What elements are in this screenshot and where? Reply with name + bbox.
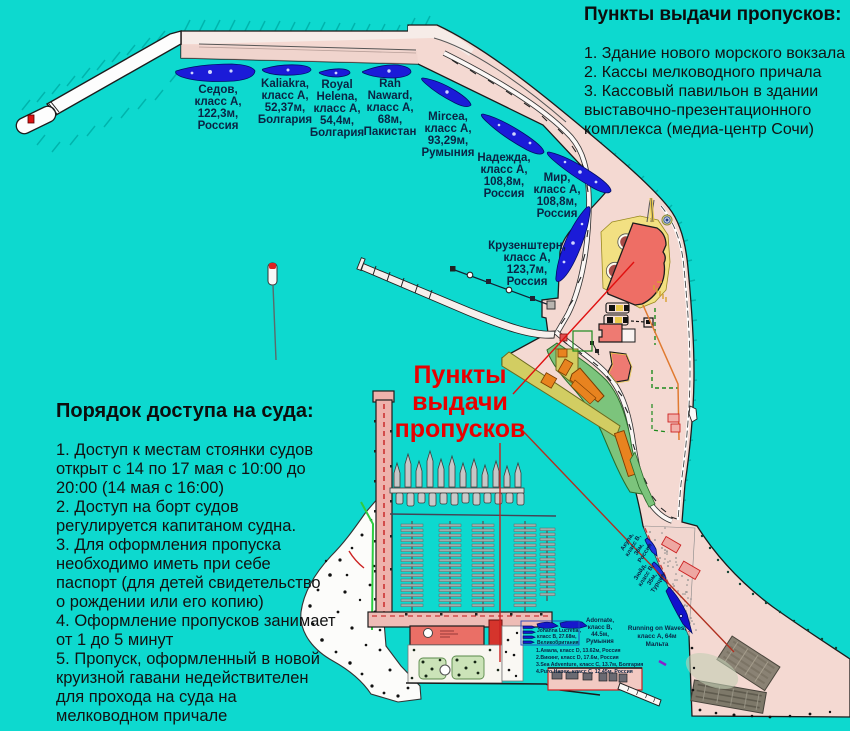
svg-text:круизной гавани недействителен: круизной гавани недействителен [56, 669, 309, 687]
svg-text:2. Доступ на борт судов: 2. Доступ на борт судов [56, 498, 239, 516]
svg-text:паспорт (для детей свидетельст: паспорт (для детей свидетельство [56, 574, 321, 592]
svg-text:Naward,: Naward, [368, 90, 413, 102]
svg-text:открыт с 14 по 17 мая с 10:00: открыт с 14 по 17 мая с 10:00 до [56, 460, 306, 478]
svg-text:1. Доступ к местам стоянки суд: 1. Доступ к местам стоянки судов [56, 441, 313, 459]
svg-text:Румыния: Румыния [586, 639, 614, 645]
svg-text:Пакистан: Пакистан [364, 126, 417, 138]
svg-text:Helena,: Helena, [317, 91, 358, 103]
svg-text:о рождении или его копию): о рождении или его копию) [56, 593, 264, 611]
svg-text:122,3м,: 122,3м, [198, 108, 238, 120]
svg-text:класс А,: класс А, [261, 90, 308, 102]
svg-text:класс А,: класс А, [313, 103, 360, 115]
svg-text:54,4м,: 54,4м, [320, 115, 354, 127]
svg-text:пропусков: пропусков [395, 415, 526, 443]
svg-text:Mircea,: Mircea, [428, 111, 468, 123]
svg-text:2. Кассы мелководного причала: 2. Кассы мелководного причала [584, 64, 822, 81]
svg-text:класс А,: класс А, [480, 164, 527, 176]
svg-text:Порядок доступа на суда:: Порядок доступа на суда: [56, 400, 314, 422]
svg-text:Мир,: Мир, [544, 172, 571, 184]
svg-text:выдачи: выдачи [412, 388, 508, 416]
svg-text:Россия: Россия [484, 188, 525, 200]
svg-text:Пункты: Пункты [413, 361, 506, 389]
svg-text:необходимо иметь при себе: необходимо иметь при себе [56, 555, 271, 573]
svg-text:2.Викинг, класс D, 17.6м, Росс: 2.Викинг, класс D, 17.6м, Россия [536, 655, 619, 661]
svg-text:класс А,: класс А, [366, 102, 413, 114]
svg-text:3.Sea Adventure, класс C, 13.7: 3.Sea Adventure, класс C, 13.7м, Болгари… [536, 662, 643, 668]
svg-text:Rah: Rah [379, 78, 401, 90]
svg-text:Россия: Россия [198, 120, 239, 132]
svg-text:от 1 до 5 минут: от 1 до 5 минут [56, 631, 174, 649]
svg-text:108,8м,: 108,8м, [537, 196, 577, 208]
svg-text:для прохода на суда на: для прохода на суда на [56, 688, 237, 706]
svg-text:Болгария: Болгария [258, 114, 312, 126]
svg-text:Мальта: Мальта [646, 641, 669, 648]
svg-text:класс А,: класс А, [424, 123, 471, 135]
svg-text:Adornate,: Adornate, [586, 618, 614, 624]
svg-text:Седов,: Седов, [198, 84, 237, 96]
svg-text:класс В,: класс В, [588, 625, 613, 631]
svg-text:Royal: Royal [321, 79, 352, 91]
svg-text:123,7м,: 123,7м, [507, 264, 547, 276]
svg-text:Россия: Россия [537, 208, 578, 220]
svg-text:Румыния: Румыния [422, 147, 475, 159]
svg-text:5. Пропуск, оформленный в ново: 5. Пропуск, оформленный в новой [56, 650, 320, 668]
svg-text:108,8м,: 108,8м, [484, 176, 524, 188]
svg-text:Running on Waves,: Running on Waves, [628, 625, 686, 632]
svg-text:44.5м,: 44.5м, [591, 632, 609, 638]
svg-text:4.Puro Hanex, класс C, 12.45м,: 4.Puro Hanex, класс C, 12.45м, Россия [536, 669, 633, 675]
svg-text:20:00 (14 мая с 16:00): 20:00 (14 мая с 16:00) [56, 479, 224, 497]
svg-text:Пункты выдачи пропусков:: Пункты выдачи пропусков: [584, 4, 841, 25]
svg-text:52,37м,: 52,37м, [265, 102, 305, 114]
svg-text:комплекса (медиа-центр Сочи): комплекса (медиа-центр Сочи) [584, 121, 814, 138]
svg-text:класс А, 64м: класс А, 64м [637, 633, 677, 640]
svg-text:3. Кассовый павильон в здании: 3. Кассовый павильон в здании [584, 83, 818, 100]
svg-text:класс А,: класс А, [503, 252, 550, 264]
svg-text:класс А,: класс А, [194, 96, 241, 108]
svg-text:Kaliakra,: Kaliakra, [261, 78, 309, 90]
svg-text:выставочно-презентационного: выставочно-презентационного [584, 102, 811, 119]
svg-text:93,29м,: 93,29м, [428, 135, 468, 147]
svg-text:Россия: Россия [507, 276, 548, 288]
svg-text:Надежда,: Надежда, [477, 152, 530, 164]
svg-text:1. Здание нового морского вокз: 1. Здание нового морского вокзала [584, 45, 845, 62]
svg-text:1.Амала, класс D, 13.62м, Росс: 1.Амала, класс D, 13.62м, Россия [536, 648, 621, 654]
svg-text:класс А,: класс А, [533, 184, 580, 196]
svg-text:Болгария: Болгария [310, 127, 364, 139]
svg-text:мелководном причале: мелководном причале [56, 707, 227, 725]
svg-text:Крузенштерн,: Крузенштерн, [488, 240, 566, 252]
svg-text:3. Для оформления пропуска: 3. Для оформления пропуска [56, 536, 282, 554]
svg-text:Великобритания: Великобритания [537, 639, 579, 646]
svg-text:4. Оформление пропусков занима: 4. Оформление пропусков занимает [56, 612, 336, 630]
svg-text:регулируется капитаном судна.: регулируется капитаном судна. [56, 517, 296, 535]
svg-text:68м,: 68м, [378, 114, 403, 126]
